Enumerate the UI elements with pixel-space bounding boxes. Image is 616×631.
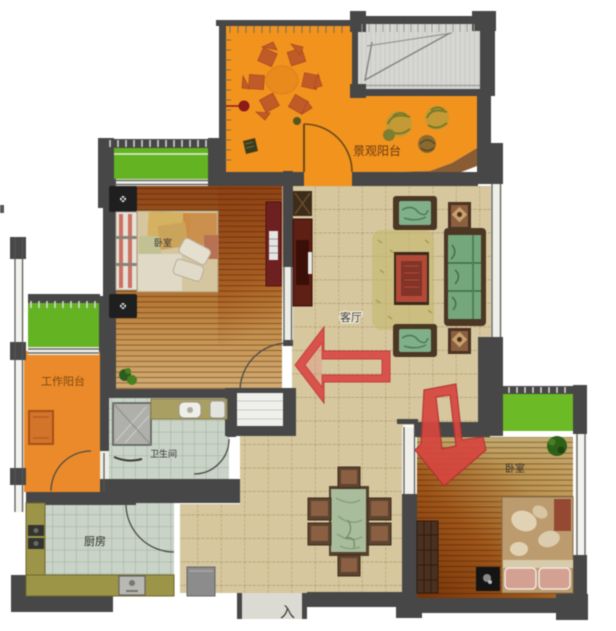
svg-text:客厅: 客厅 <box>340 310 362 324</box>
svg-text:厨房: 厨房 <box>84 535 106 548</box>
svg-text:卫生间: 卫生间 <box>150 448 177 459</box>
svg-text:景观阳台: 景观阳台 <box>353 143 401 158</box>
svg-text:卧室: 卧室 <box>154 237 172 248</box>
svg-text:入: 入 <box>280 604 295 621</box>
svg-text:工作阳台: 工作阳台 <box>41 374 85 388</box>
svg-text:卧室: 卧室 <box>505 462 525 475</box>
